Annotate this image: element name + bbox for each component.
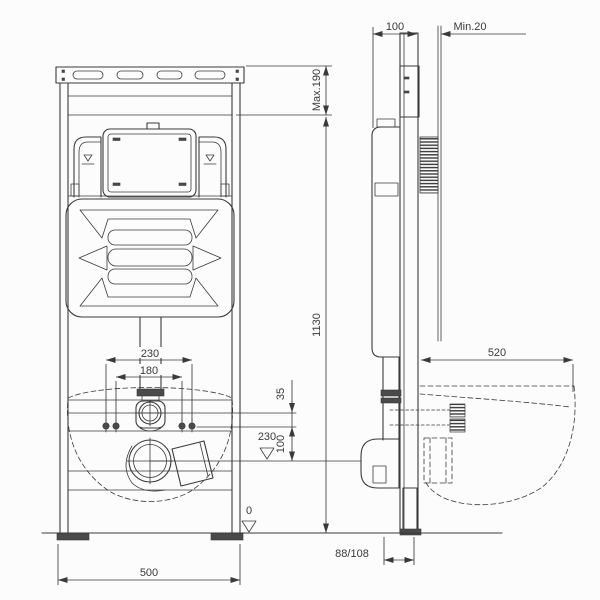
dim-max-top-adjustment-label: Max.190: [311, 69, 323, 111]
frame-feet: [57, 533, 243, 540]
wall-lines: [438, 26, 441, 341]
floor-level-marker: 0: [242, 505, 256, 532]
dim-outer-fixing-width-label: 230: [141, 348, 159, 360]
front-view: [56, 67, 296, 540]
dim-inlet-to-outlet-drop-label: 100: [275, 435, 287, 453]
cistern-chevron-pattern: [79, 210, 221, 306]
datum-triangle-icon: [242, 521, 256, 532]
outlet-sleeve-side: [424, 438, 452, 483]
outlet-elbow-side: [361, 439, 399, 488]
dim-outlet-wall-offset-label: 88/108: [335, 548, 369, 560]
dim-bowl-depth-label: 520: [488, 347, 506, 359]
drawing-sheet: 100 Min.20 Max.190 1130 520 230 180 35 1…: [0, 0, 600, 600]
dim-frame-depth-label: 100: [386, 21, 404, 33]
dim-inner-fixing-width-label: 180: [140, 365, 158, 377]
fixing-studs-side: [390, 404, 465, 432]
datum-triangle-icon: [260, 448, 274, 459]
right-bracket: [199, 137, 229, 197]
dim-frame-width-label: 500: [140, 567, 158, 579]
side-view: [361, 26, 575, 535]
bowl-outline-side: [420, 386, 575, 505]
datum-triangle-icon: [204, 155, 216, 164]
cistern-side: [372, 119, 400, 357]
frame-upright-side: [400, 33, 418, 533]
left-bracket: [71, 137, 101, 197]
dim-min-clearance-label: Min.20: [453, 21, 486, 33]
wc-frame-technical-drawing: 100 Min.20 Max.190 1130 520 230 180 35 1…: [0, 0, 600, 600]
level-floor-label: 0: [246, 505, 252, 517]
cistern-tank: [66, 196, 234, 317]
flush-plate-window: [103, 123, 196, 197]
datum-triangle-icon: [82, 155, 94, 164]
flush-duct-side: [400, 66, 419, 117]
dim-inlet-drop-label: 35: [275, 388, 287, 400]
flush-pipe-side: [381, 357, 401, 440]
outlet-connection: [126, 438, 213, 491]
dim-frame-height-label: 1130: [311, 313, 323, 337]
outlet-level-marker: 230: [258, 431, 276, 459]
inlet-connection: [136, 400, 165, 431]
top-rail: [56, 67, 244, 83]
wall-hatch-section: [420, 137, 438, 193]
level-outlet-height-label: 230: [258, 431, 276, 443]
